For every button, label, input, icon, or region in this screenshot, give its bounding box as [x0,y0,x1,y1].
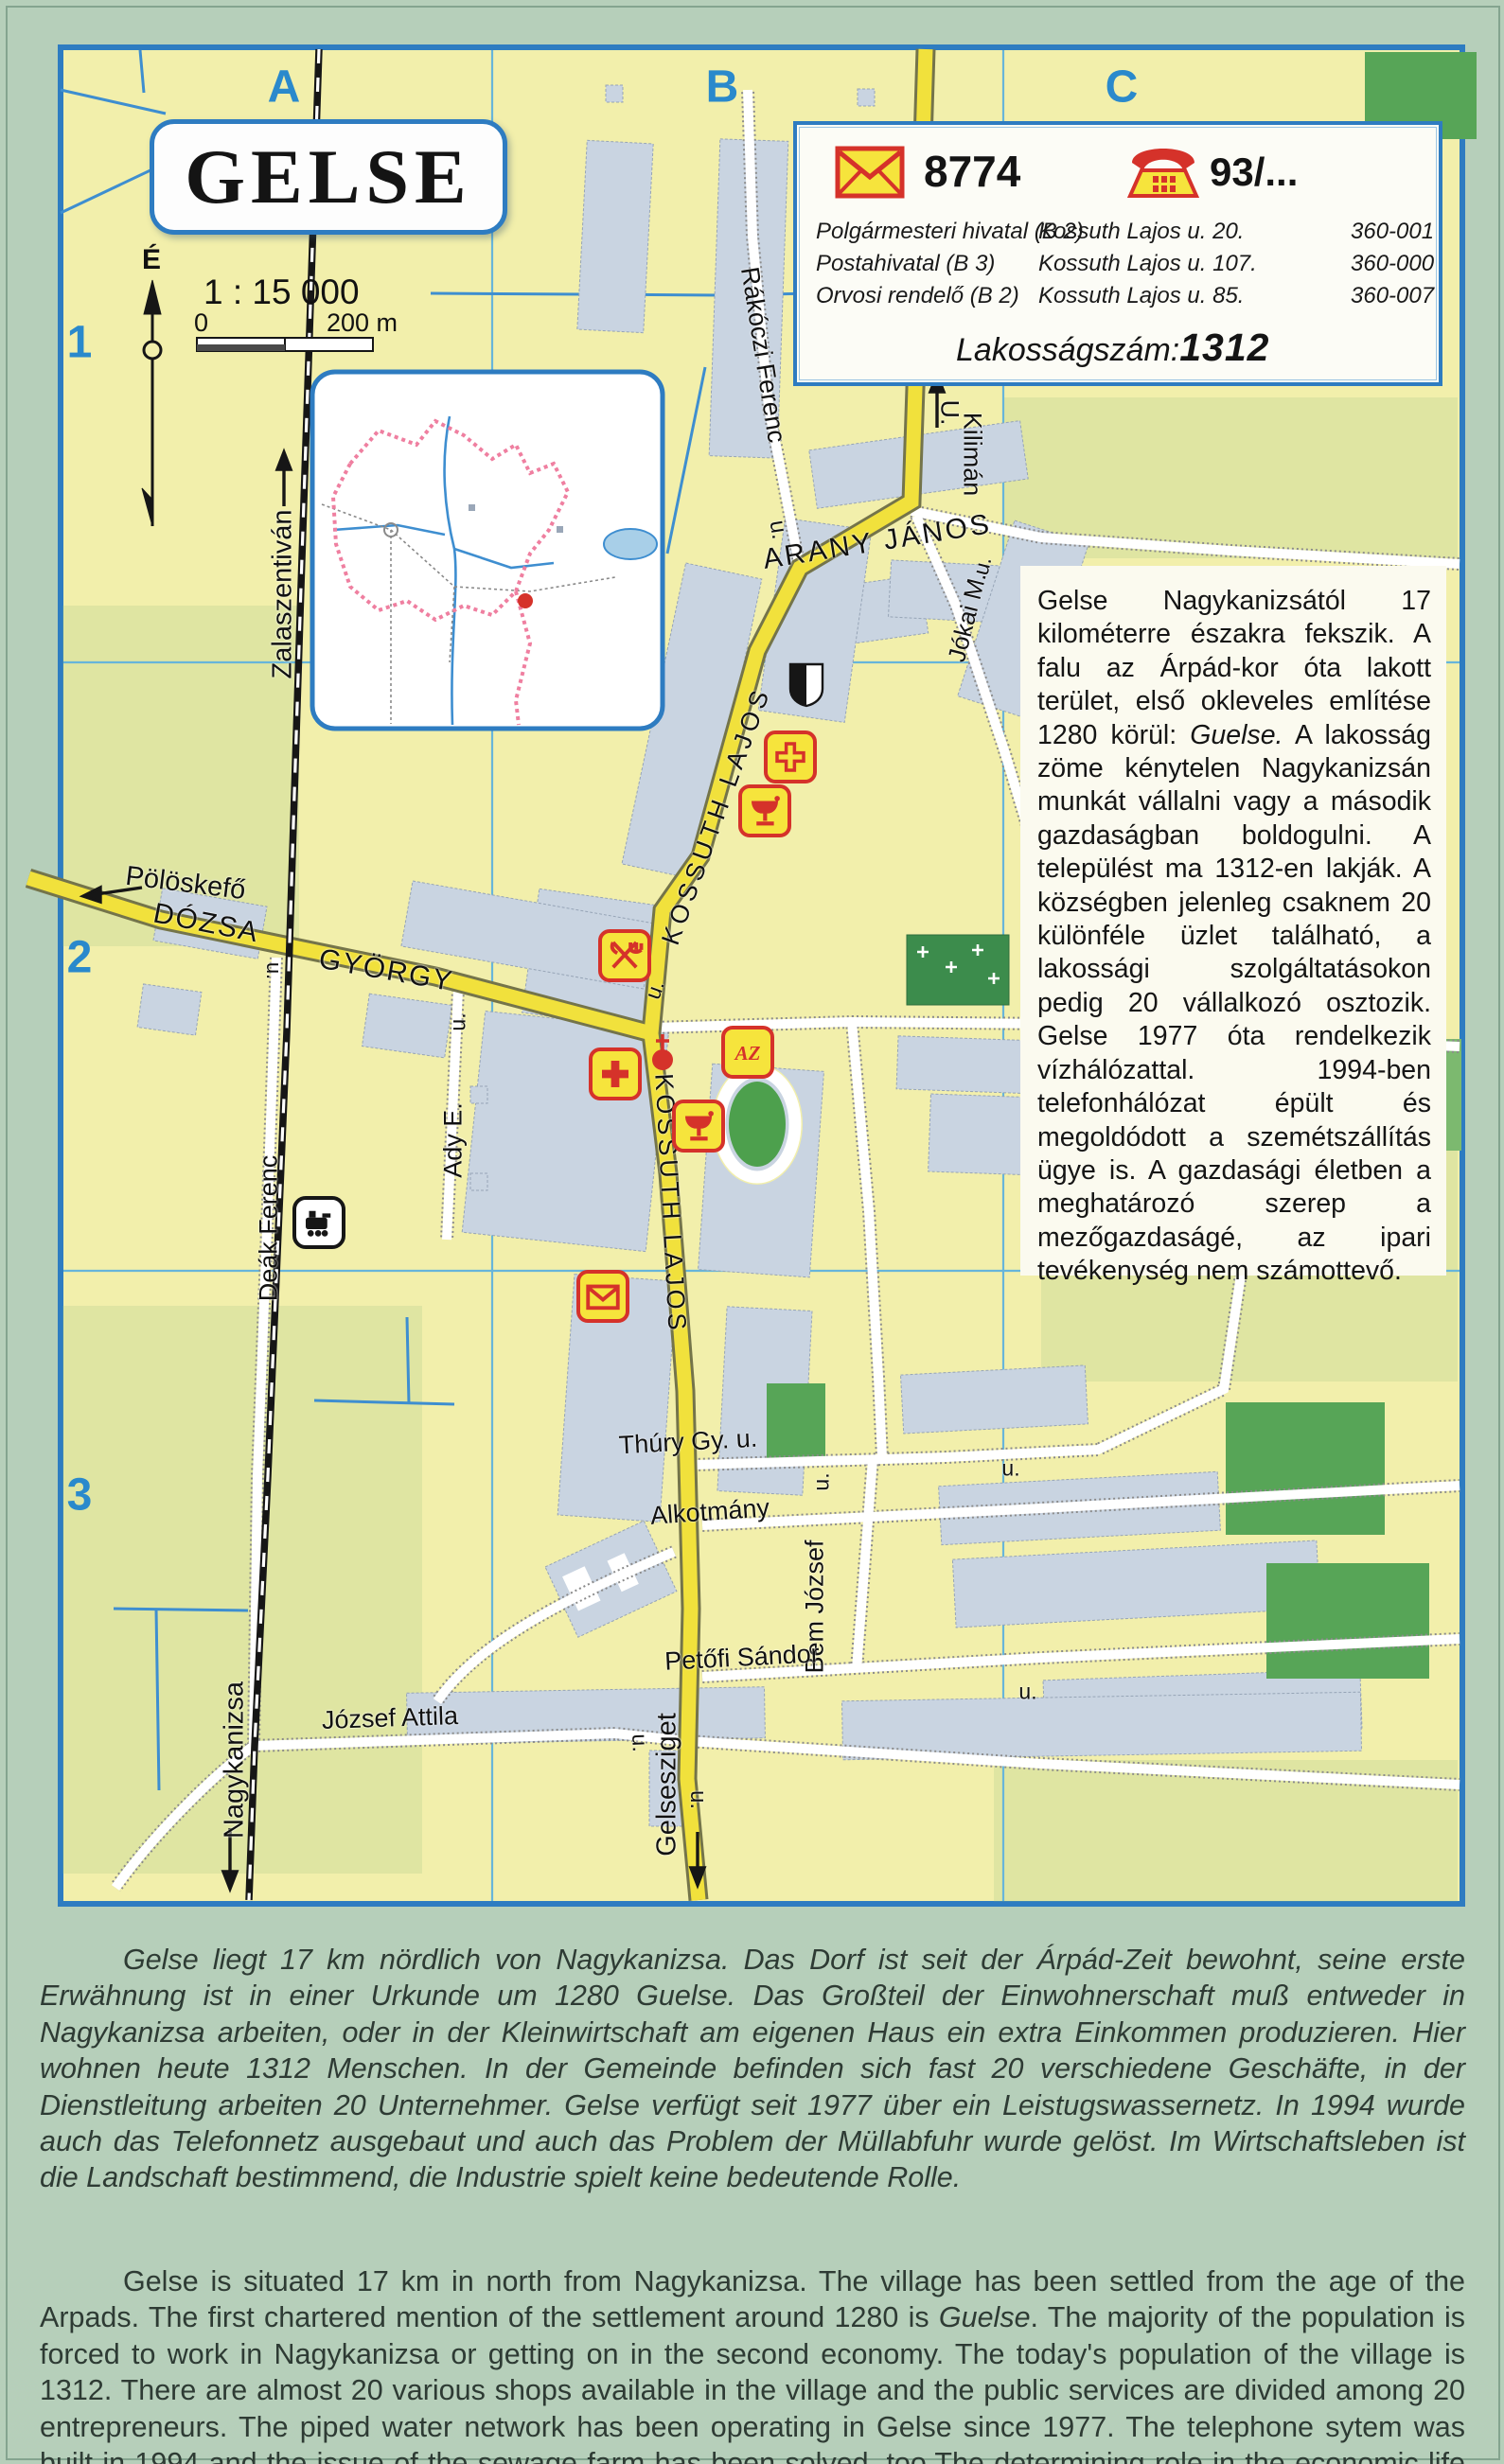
railway-station-icon [292,1196,345,1249]
post-office-icon [583,1276,623,1316]
directory-name: Postahivatal (B 3) [816,248,1038,280]
scale-bar [197,338,373,351]
german-description: Gelse liegt 17 km nördlich von Nagykaniz… [40,1942,1465,2196]
directory-name: Orvosi rendelő (B 2) [816,280,1038,312]
inset-map [312,372,663,729]
info-box: 8774 93/... Polgármesteri hivatal (B 2)K… [793,121,1442,386]
directory-address: Kossuth Lajos u. 85. [1038,280,1351,312]
street-label: u. [627,1734,653,1752]
title-box: GELSE [150,119,507,235]
grid-row-1: 1 [67,317,93,369]
directory-name: Polgármesteri hivatal (B 2) [816,216,1038,248]
grid-row-3: 3 [67,1470,93,1522]
phone-prefix: 93/... [1210,150,1298,195]
scale-zero: 0 [194,308,208,338]
street-label: u. [446,1012,471,1030]
restaurant-icon [598,929,651,982]
street-label: Deák Ferenc [255,1155,284,1302]
abc-store-icon [721,1026,774,1079]
pharmacy-icon [738,784,791,837]
hungarian-description: Gelse Nagykanizsától 17 kilométerre észa… [1020,566,1446,1276]
cemetery [907,935,1009,1005]
pharmacy-icon [672,1100,725,1153]
street-label: u. [684,1790,711,1809]
street-label: Nagykanizsa [220,1681,251,1839]
grid-row-2: 2 [67,932,93,984]
inset-lake [604,529,657,559]
postal-code: 8774 [924,146,1020,197]
pharmacy-icon [745,791,785,831]
directory-row: Orvosi rendelő (B 2)Kossuth Lajos u. 85.… [816,280,1422,312]
street-label: Kilimán [958,413,987,497]
restaurant-icon [605,936,645,976]
hungarian-text: Gelse Nagykanizsától 17 kilométerre észa… [1037,585,1431,1289]
street-label: Ady E. [439,1102,469,1178]
directory: Polgármesteri hivatal (B 2)Kossuth Lajos… [816,216,1422,312]
phone-icon [1124,142,1202,199]
grid-column-B: B [706,62,739,114]
north-label: É [142,244,161,276]
clinic-cross-icon [589,1047,642,1100]
street-label: u. [261,962,286,979]
scale-ratio: 1 : 15 000 [203,273,360,312]
population: Lakosságszám:1312 [956,326,1269,370]
street-label: u. [1001,1456,1019,1482]
directory-phone: 360-001 [1351,216,1434,248]
monument-shield-icon [790,664,823,706]
directory-row: Polgármesteri hivatal (B 2)Kossuth Lajos… [816,216,1422,248]
page-title: GELSE [185,132,471,221]
post-office-icon [576,1270,629,1323]
hospital-cross-icon [764,730,817,783]
abc-store-icon [728,1032,768,1072]
directory-address: Kossuth Lajos u. 107. [1038,248,1351,280]
inset-town-dot [518,593,533,608]
grid-column-C: C [1106,62,1139,114]
directory-phone: 360-007 [1351,280,1434,312]
directory-phone: 360-000 [1351,248,1434,280]
street-label: Gelsesziget [652,1713,683,1857]
pharmacy-icon [679,1106,718,1146]
street-label: u. [809,1472,835,1490]
map-page: ABC123 GELSE 1 : 15 000 0 200 m É á r b … [0,0,1504,2464]
directory-address: Kossuth Lajos u. 20. [1038,216,1351,248]
directory-row: Postahivatal (B 3)Kossuth Lajos u. 107.3… [816,248,1422,280]
english-description: Gelse is situated 17 km in north from Na… [40,2263,1465,2464]
clinic-cross-icon [595,1054,635,1094]
postal-envelope-icon [835,146,905,199]
railway-station-icon [299,1203,339,1242]
hospital-cross-icon [770,737,810,777]
street-label: u. [1018,1680,1036,1705]
street-label: József Attila [321,1701,458,1735]
grid-column-A: A [268,62,301,114]
population-label: Lakosságszám: [956,332,1179,368]
population-value: 1312 [1179,326,1269,369]
scale-end: 200 m [327,308,398,338]
street-label: Zalaszentiván [268,510,299,679]
